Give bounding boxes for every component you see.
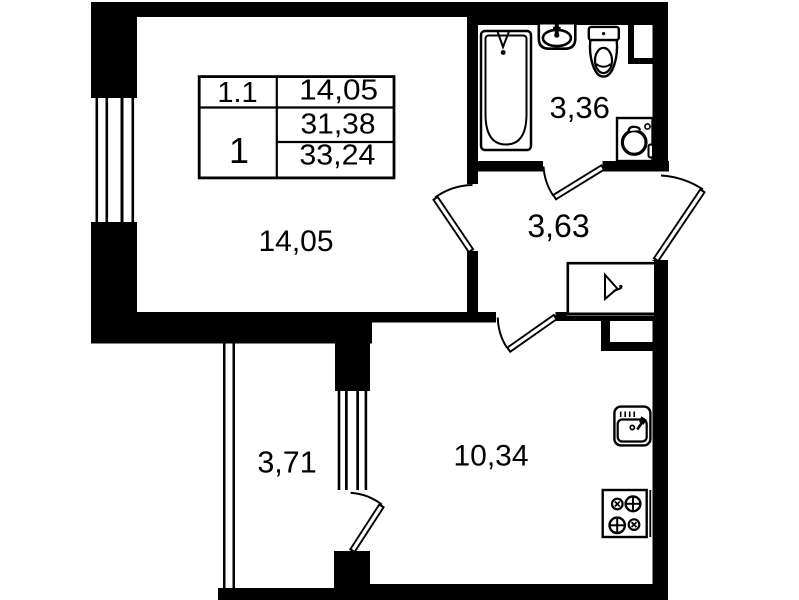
svg-text:10,34: 10,34 [453, 439, 528, 472]
svg-text:1.1: 1.1 [217, 77, 257, 109]
svg-text:3,71: 3,71 [257, 446, 316, 480]
svg-text:33,24: 33,24 [299, 140, 375, 172]
svg-text:3,36: 3,36 [550, 90, 610, 125]
svg-text:3,63: 3,63 [527, 208, 589, 244]
svg-text:14,05: 14,05 [258, 225, 333, 258]
svg-text:14,05: 14,05 [299, 75, 378, 107]
svg-text:31,38: 31,38 [301, 108, 376, 140]
svg-text:1: 1 [229, 130, 249, 171]
